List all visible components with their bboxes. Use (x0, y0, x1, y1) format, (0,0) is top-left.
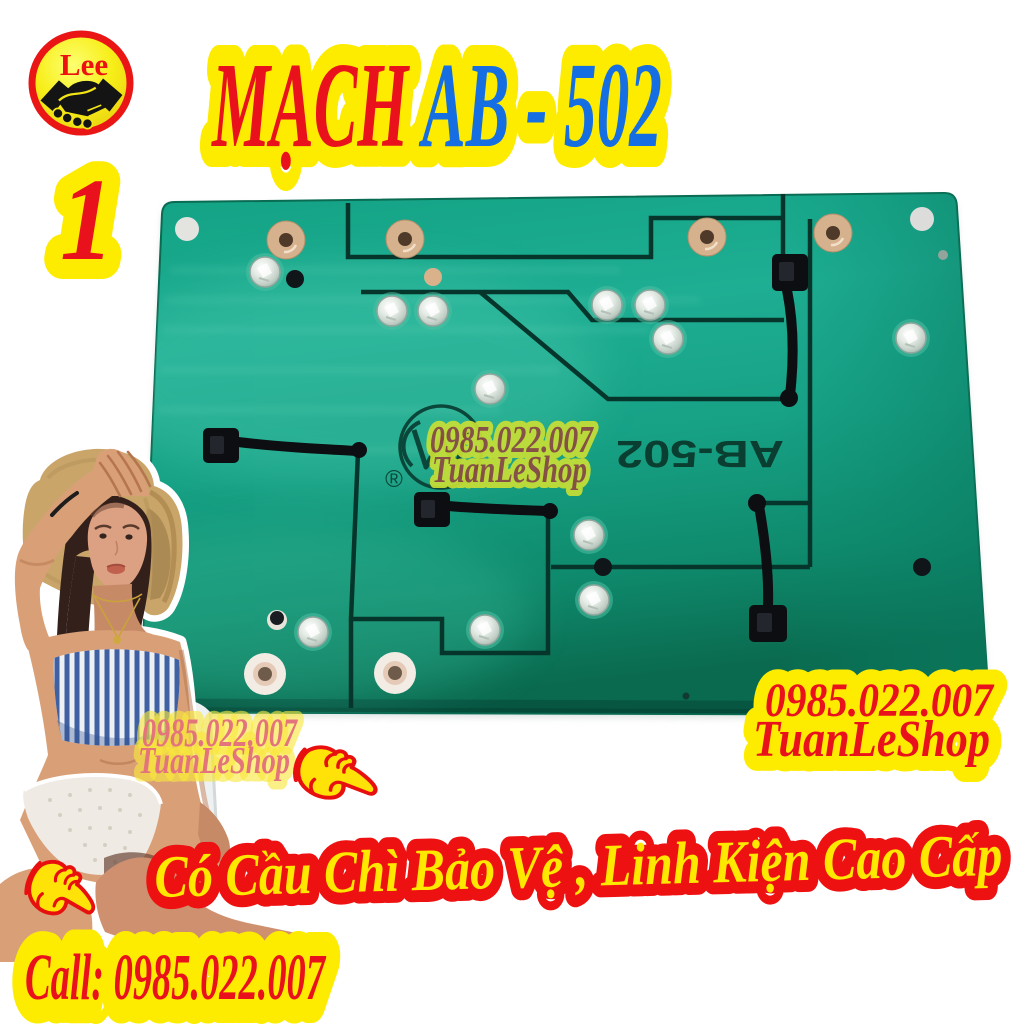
svg-text:Có Cầu Chì Bảo Vệ , Linh Kiện: Có Cầu Chì Bảo Vệ , Linh Kiện Cao Cấp (154, 822, 1003, 910)
svg-text:TuanLeShop: TuanLeShop (753, 711, 990, 768)
svg-text:®: ® (385, 466, 403, 493)
svg-text:TuanLeShop: TuanLeShop (138, 740, 290, 782)
svg-text:MẠCH AB - 502: MẠCH AB - 502 (211, 38, 662, 173)
svg-text:AB-502: AB-502 (616, 432, 784, 474)
svg-text:TuanLeShop: TuanLeShop (432, 449, 587, 491)
svg-text:1: 1 (60, 154, 114, 285)
svg-text:Call: 0985.022.007: Call: 0985.022.007 (25, 941, 327, 1014)
svg-text:Lee: Lee (60, 47, 108, 82)
